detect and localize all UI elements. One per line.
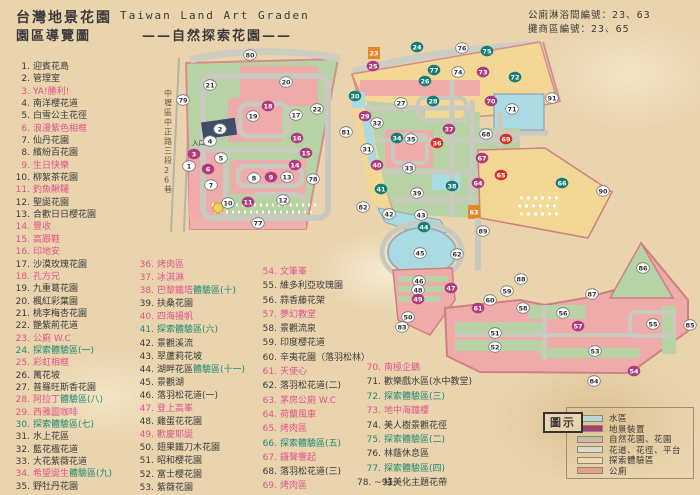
map-marker-82: 82: [357, 202, 370, 213]
list-item: 56.蒜香藤花架: [253, 293, 370, 307]
legend-swatch: [577, 457, 603, 464]
svg-text:49: 49: [413, 295, 423, 303]
map-marker-10: 10: [222, 198, 235, 209]
svg-text:59: 59: [502, 287, 512, 295]
map-marker-62: 62: [451, 249, 464, 260]
list-item: 9.生日快樂: [6, 158, 112, 170]
svg-text:71: 71: [507, 105, 517, 113]
list-item: 52.富士櫻花園: [130, 467, 245, 480]
map-marker-32: 32: [371, 118, 384, 129]
map-marker-7: 7: [205, 180, 218, 191]
map-marker-4: 4: [204, 136, 217, 147]
svg-text:45: 45: [415, 249, 425, 257]
svg-text:86: 86: [638, 264, 648, 272]
map-marker-9: 9: [265, 172, 278, 183]
svg-text:20: 20: [281, 78, 291, 86]
svg-text:70: 70: [486, 97, 496, 105]
map-marker-8: 8: [248, 173, 261, 184]
svg-text:54: 54: [629, 367, 639, 375]
map-marker-37: 37: [443, 124, 456, 135]
list-item: 77.探索體驗區(四): [357, 461, 472, 475]
svg-text:47: 47: [446, 284, 455, 292]
list-item: 12.聖誕花園: [6, 195, 112, 207]
list-item: 76.林蔭休息區: [357, 446, 472, 460]
list-item: 20.楓紅彩葉園: [6, 294, 112, 306]
svg-text:44: 44: [419, 223, 429, 231]
map-marker-91: 91: [546, 93, 559, 104]
map-marker-88: 88: [515, 274, 528, 285]
svg-text:85: 85: [685, 321, 695, 329]
map-marker-23: 23: [368, 47, 380, 59]
svg-text:37: 37: [444, 125, 453, 133]
list-item: 6.浪漫紫色相框: [6, 121, 112, 133]
list-item: 13.合歡日日櫻花園: [6, 207, 112, 219]
list-item: 57.夢幻教堂: [253, 307, 370, 321]
list-item: 42.景觀溪流: [130, 336, 245, 349]
map-marker-77: 77: [428, 65, 441, 76]
list-item: 34.希望誕生 體驗區(九): [6, 466, 112, 478]
subtitle-nature-garden: ——自然探索花園——: [142, 25, 292, 44]
list-col-3: 54.文筆峯55.維多利亞玫瑰園56.蒜香藤花架57.夢幻教堂58.景觀流泉59…: [253, 264, 370, 493]
subtitle-guide-map: 園區導覽圖: [16, 25, 91, 44]
list-item: 66.探索體驗區(五): [253, 436, 370, 450]
list-item: 21.桃李梅杏花園: [6, 306, 112, 318]
list-item: 2.管理室: [6, 71, 112, 83]
svg-text:2: 2: [218, 125, 223, 133]
list-item: 62.落羽松花道(二): [253, 378, 370, 392]
map-marker-18: 18: [262, 101, 275, 112]
map-marker-79: 79: [177, 95, 190, 106]
map-marker-41: 41: [375, 184, 388, 195]
list-item: 63.茅房公廁 W.C: [253, 393, 370, 407]
map-marker-59: 59: [501, 286, 514, 297]
map-marker-42: 42: [383, 209, 396, 220]
map-marker-11: 11: [242, 197, 255, 208]
map-marker-12: 12: [277, 195, 290, 206]
list-item: 29.西雅圖咖啡: [6, 405, 112, 417]
svg-text:55: 55: [648, 320, 658, 328]
map-marker-21: 21: [204, 80, 217, 91]
list-item: 14.豐收: [6, 219, 112, 231]
list-item: 46.落羽松花道(一): [130, 388, 245, 401]
map-marker-45: 45: [414, 248, 427, 259]
svg-text:87: 87: [587, 290, 596, 298]
map-marker-15: 15: [300, 148, 313, 159]
page-title-zh: 台灣地景花園: [16, 7, 112, 27]
map-marker-49: 49: [412, 294, 425, 305]
svg-text:22: 22: [312, 105, 321, 113]
map-marker-3: 3: [188, 149, 201, 160]
svg-text:3: 3: [192, 150, 197, 158]
svg-text:43: 43: [416, 211, 425, 219]
svg-text:82: 82: [358, 203, 367, 211]
map-marker-74: 74: [452, 67, 465, 78]
list-item: 71.歡樂戲水區(水中教堂): [357, 374, 472, 388]
map-marker-63: 63: [468, 206, 480, 218]
map-marker-80: 80: [244, 50, 257, 61]
svg-text:27: 27: [396, 99, 405, 107]
svg-text:58: 58: [518, 304, 528, 312]
svg-text:67: 67: [477, 154, 486, 162]
list-item: 61.天使心: [253, 364, 370, 378]
list-item: 37.冰淇淋: [130, 270, 245, 283]
list-item: 65.烤肉區: [253, 421, 370, 435]
map-marker-57: 57: [572, 321, 585, 332]
svg-text:69: 69: [501, 135, 511, 143]
list-item: 22.艷紫荊花道: [6, 318, 112, 330]
map-marker-51: 51: [489, 328, 502, 339]
map-marker-2: 2: [214, 124, 227, 135]
list-item: 75.探索體驗區(二): [357, 432, 472, 446]
map-marker-67: 67: [476, 153, 489, 164]
map-marker-78: 78: [307, 174, 320, 185]
svg-text:9: 9: [269, 173, 274, 181]
svg-text:52: 52: [490, 343, 499, 351]
list-item: 24.探索體驗區(一): [6, 343, 112, 355]
map-marker-1: 1: [183, 161, 196, 172]
map-marker-90: 90: [597, 186, 610, 197]
map-marker-16: 16: [291, 133, 304, 144]
map-marker-54: 54: [628, 366, 641, 377]
svg-text:77: 77: [429, 66, 438, 74]
svg-text:24: 24: [412, 43, 422, 51]
svg-text:17: 17: [291, 111, 300, 119]
map-marker-27: 27: [395, 98, 408, 109]
map-marker-33: 33: [403, 163, 416, 174]
svg-text:4: 4: [208, 137, 213, 145]
map-marker-24: 24: [411, 42, 424, 53]
list-item: 25.彩虹相框: [6, 355, 112, 367]
map-marker-64: 64: [472, 178, 485, 189]
list-item: 40.四海揚帆: [130, 309, 245, 322]
svg-text:12: 12: [278, 196, 287, 204]
legend-box: 水區地景裝置自然花園、花園花道、花徑、平台探索體驗區公廁: [566, 407, 694, 479]
svg-text:5: 5: [219, 154, 224, 162]
svg-text:14: 14: [290, 161, 300, 169]
list-item: 53.紫薇花園: [130, 480, 245, 493]
sun-garden-feature: [213, 203, 223, 213]
list-item: 17.沙漠玫瑰花園: [6, 257, 112, 269]
map-marker-34: 34: [391, 133, 404, 144]
svg-text:76: 76: [457, 44, 467, 52]
list-item: 33.大花紫薇花道: [6, 454, 112, 466]
map-marker-55: 55: [647, 319, 660, 330]
map-marker-73: 73: [477, 67, 490, 78]
list-item: 4.南洋櫻花道: [6, 96, 112, 108]
list-item: 78. ~91.綠美化主題花帶: [357, 475, 472, 489]
svg-text:61: 61: [473, 304, 483, 312]
map-marker-26: 26: [419, 76, 432, 87]
map-marker-38: 38: [446, 181, 459, 192]
svg-text:42: 42: [384, 210, 393, 218]
list-item: 73.地中海鐘樓: [357, 403, 472, 417]
map-marker-19: 19: [247, 111, 260, 122]
legend-row: 公廁: [577, 466, 693, 477]
list-item: 41.探索體驗區(六): [130, 322, 245, 335]
map-marker-72: 72: [509, 72, 522, 83]
svg-text:91: 91: [547, 94, 557, 102]
list-item: 74.美人樹景觀花徑: [357, 418, 472, 432]
map-marker-22: 22: [311, 104, 324, 115]
svg-text:60: 60: [485, 296, 495, 304]
list-item: 35.野牡丹花園: [6, 479, 112, 491]
map-marker-17: 17: [290, 110, 303, 121]
svg-text:23: 23: [369, 49, 378, 57]
list-item: 5.白雪公主花徑: [6, 108, 112, 120]
map-marker-52: 52: [489, 342, 502, 353]
svg-text:48: 48: [413, 286, 423, 294]
svg-text:56: 56: [558, 309, 568, 317]
svg-text:1: 1: [187, 162, 192, 170]
svg-text:30: 30: [350, 92, 360, 100]
map-marker-35: 35: [405, 134, 418, 145]
list-item: 15.高跟鞋: [6, 232, 112, 244]
map-marker-60: 60: [484, 295, 497, 306]
map-marker-30: 30: [349, 91, 362, 102]
svg-text:65: 65: [496, 171, 506, 179]
list-item: 23.公廁 W.C: [6, 331, 112, 343]
list-item: 18.孔方兄: [6, 269, 112, 281]
page: { "header": { "title_zh": "台灣地景花園", "tit…: [0, 0, 700, 495]
list-item: 36.烤肉區: [130, 257, 245, 270]
svg-text:77: 77: [253, 219, 262, 227]
list-item: 31.水上花區: [6, 429, 112, 441]
list-item: 45.景觀湖: [130, 375, 245, 388]
svg-text:25: 25: [368, 62, 378, 70]
list-item: 64.荷蘭風車: [253, 407, 370, 421]
map-marker-89: 89: [477, 226, 490, 237]
svg-text:28: 28: [428, 97, 438, 105]
list-item: 19.九重葛花園: [6, 281, 112, 293]
map-marker-81: 81: [340, 127, 353, 138]
legend-swatch: [577, 467, 603, 474]
svg-text:88: 88: [516, 275, 526, 283]
svg-text:31: 31: [362, 145, 372, 153]
svg-text:51: 51: [490, 329, 500, 337]
list-item: 30.探索體驗區(七): [6, 417, 112, 429]
map-marker-47: 47: [445, 283, 458, 294]
svg-text:63: 63: [469, 208, 478, 216]
svg-text:89: 89: [478, 227, 488, 235]
list-item: 54.文筆峯: [253, 264, 370, 278]
list-item: 51.昭和櫻花園: [130, 453, 245, 466]
list-item: 72.探索體驗區(三): [357, 389, 472, 403]
map-marker-66: 66: [556, 178, 569, 189]
svg-text:6: 6: [206, 165, 211, 173]
explore-area-east: [478, 148, 612, 238]
legend-title: 圖示: [543, 412, 583, 433]
list-item: 10.柳絮茶花園: [6, 170, 112, 182]
map-marker-65: 65: [495, 170, 508, 181]
list-col-4: 70.南極企鵝71.歡樂戲水區(水中教堂)72.探索體驗區(三)73.地中海鐘樓…: [357, 360, 472, 490]
list-item: 55.維多利亞玫瑰園: [253, 278, 370, 292]
map-marker-6: 6: [202, 164, 215, 175]
map-marker-29: 29: [359, 111, 372, 122]
svg-text:72: 72: [510, 73, 519, 81]
svg-text:26: 26: [420, 77, 430, 85]
map-marker-58: 58: [517, 303, 530, 314]
map-marker-84: 84: [588, 376, 601, 387]
svg-text:32: 32: [372, 119, 381, 127]
svg-text:39: 39: [412, 189, 422, 197]
list-item: 1.迎賓花島: [6, 59, 112, 71]
svg-text:33: 33: [404, 164, 413, 172]
svg-text:78: 78: [308, 175, 318, 183]
svg-text:15: 15: [301, 149, 311, 157]
svg-text:68: 68: [481, 130, 491, 138]
svg-text:66: 66: [557, 179, 567, 187]
svg-text:19: 19: [248, 112, 258, 120]
svg-text:41: 41: [376, 185, 386, 193]
map-marker-61: 61: [472, 303, 485, 314]
list-item: 8.繽紛百花園: [6, 145, 112, 157]
legend-swatch: [577, 446, 603, 453]
svg-text:80: 80: [245, 51, 255, 59]
map-marker-56: 56: [557, 308, 570, 319]
map-marker-71: 71: [506, 104, 519, 115]
list-item: 67.鑼聲響起: [253, 450, 370, 464]
svg-text:11: 11: [243, 198, 253, 206]
list-item: 3.YA!勝利!: [6, 84, 112, 96]
list-item: 69.烤肉區: [253, 478, 370, 492]
map-marker-77: 77: [252, 218, 265, 229]
map-marker-13: 13: [281, 172, 294, 183]
list-item: 58.景觀流泉: [253, 321, 370, 335]
list-item: 44.湖畔花區 體驗區(十一): [130, 362, 245, 375]
map-marker-5: 5: [215, 153, 228, 164]
map-marker-39: 39: [411, 188, 424, 199]
map-marker-86: 86: [637, 263, 650, 274]
legend-row: 探索體驗區: [577, 455, 693, 466]
svg-text:21: 21: [205, 81, 215, 89]
list-item: 48.雞蛋花花園: [130, 414, 245, 427]
svg-text:64: 64: [473, 179, 483, 187]
list-item: 26.萬花坡: [6, 368, 112, 380]
list-item: 43.翠蘆莉花坡: [130, 349, 245, 362]
list-item: 38.巴黎鐵塔 體驗區(十): [130, 283, 245, 296]
legend-label: 公廁: [609, 465, 627, 477]
list-item: 27.普羅旺斯香花園: [6, 380, 112, 392]
svg-text:8: 8: [252, 174, 257, 182]
map-marker-83: 83: [396, 322, 409, 333]
list-item: 68.落羽松花道(三): [253, 464, 370, 478]
map-marker-69: 69: [500, 134, 513, 145]
list-item: 7.仙丹花園: [6, 133, 112, 145]
svg-text:38: 38: [447, 182, 457, 190]
map-marker-31: 31: [361, 144, 374, 155]
list-item: 28.阿拉丁 體驗區(八): [6, 392, 112, 404]
list-col-2: 36.烤肉區37.冰淇淋38.巴黎鐵塔 體驗區(十)39.扶桑花園40.四海揚帆…: [130, 257, 245, 493]
map-marker-43: 43: [415, 210, 428, 221]
svg-text:13: 13: [282, 173, 291, 181]
vendor-area-note: 攤商區編號：23、65: [528, 21, 630, 35]
svg-text:40: 40: [372, 161, 382, 169]
map-marker-14: 14: [289, 160, 302, 171]
svg-text:16: 16: [292, 134, 302, 142]
svg-text:79: 79: [178, 96, 188, 104]
map-marker-50: 50: [402, 312, 415, 323]
svg-text:83: 83: [397, 323, 406, 331]
list-item: 60.辛夷花園（落羽松林）: [253, 350, 370, 364]
svg-text:73: 73: [478, 68, 487, 76]
svg-text:29: 29: [360, 112, 370, 120]
map-marker-87: 87: [586, 289, 599, 300]
svg-text:57: 57: [573, 322, 582, 330]
page-title-en: Taiwan Land Art Graden: [120, 9, 310, 22]
list-item: 70.南極企鵝: [357, 360, 472, 374]
list-col-1: 1.迎賓花島2.管理室3.YA!勝利!4.南洋櫻花道5.白雪公主花徑6.浪漫紫色…: [6, 59, 112, 491]
list-item: 49.歡慶耶誕: [130, 427, 245, 440]
entrance-label: 入口: [192, 139, 205, 147]
svg-text:10: 10: [223, 199, 233, 207]
svg-text:74: 74: [453, 68, 463, 76]
svg-text:62: 62: [452, 250, 461, 258]
svg-text:35: 35: [406, 135, 416, 143]
map-marker-68: 68: [480, 129, 493, 140]
map-marker-28: 28: [427, 96, 440, 107]
street-label: 中壢區中正路三段26巷: [164, 88, 172, 194]
svg-text:84: 84: [589, 377, 599, 385]
map-marker-53: 53: [589, 346, 602, 357]
svg-text:18: 18: [263, 102, 273, 110]
svg-text:81: 81: [341, 128, 351, 136]
map-marker-85: 85: [684, 320, 697, 331]
map-marker-44: 44: [418, 222, 431, 233]
list-item: 59.印度櫻花道: [253, 335, 370, 349]
svg-text:90: 90: [598, 187, 608, 195]
svg-text:75: 75: [482, 47, 492, 55]
svg-text:36: 36: [432, 139, 442, 147]
svg-text:7: 7: [209, 181, 214, 189]
map-marker-40: 40: [371, 160, 384, 171]
legend-swatch: [577, 436, 603, 443]
svg-text:34: 34: [392, 134, 402, 142]
map-marker-75: 75: [481, 46, 494, 57]
map-marker-25: 25: [367, 61, 380, 72]
list-item: 39.扶桑花園: [130, 296, 245, 309]
map-marker-76: 76: [456, 43, 469, 54]
map-marker-70: 70: [485, 96, 498, 107]
svg-text:46: 46: [414, 277, 424, 285]
map-marker-20: 20: [280, 77, 293, 88]
svg-text:50: 50: [403, 313, 413, 321]
list-item: 16.印地安: [6, 244, 112, 256]
list-item: 47.登上高峯: [130, 401, 245, 414]
svg-text:53: 53: [590, 347, 599, 355]
map-marker-36: 36: [431, 138, 444, 149]
list-item: 32.藍花楹花道: [6, 442, 112, 454]
list-item: 50.翅果鐵刀木花園: [130, 440, 245, 453]
toilet-shower-note: 公廁淋浴間編號：23、63: [528, 7, 651, 21]
list-item: 11.釣魚鞦韆: [6, 182, 112, 194]
